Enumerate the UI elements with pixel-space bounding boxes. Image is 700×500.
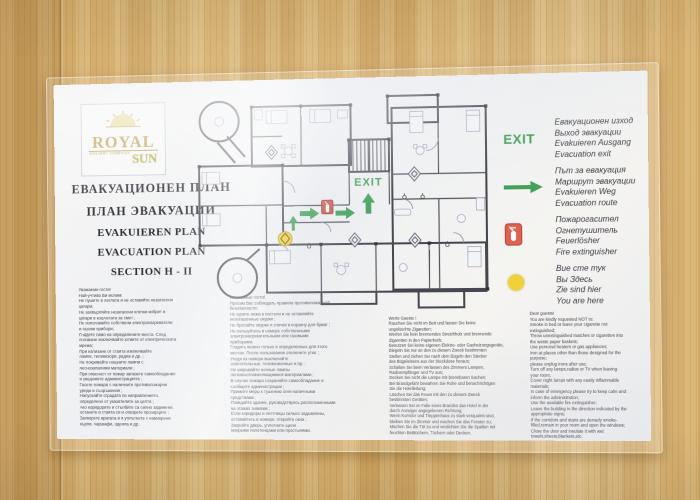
note-line: towels,sheets,blankets,etc. [531, 434, 651, 440]
note-line: кърпи, чаршафи, одеяла и др. [80, 421, 227, 427]
royal-sun-logo: ROYAL HOLIDAY COMPLEX SUN [81, 102, 167, 176]
plan-furniture [201, 105, 485, 283]
legend-line: Пожарогасител [555, 214, 618, 226]
exit-symbol-text: EXIT [503, 131, 554, 147]
you-are-here-dot-icon [508, 274, 525, 290]
plan-wall-ticks [197, 92, 489, 293]
sun-icon [94, 108, 152, 129]
legend-line: Evakuieren Ausgang [555, 137, 634, 149]
legend-line: Evacuation route [555, 197, 635, 209]
legend-line: Маршрут эвакуации [555, 176, 635, 188]
legend: EXIT Евакуационен изходВыход эвакуацииEv… [503, 116, 650, 313]
evacuation-plan-poster: ROYAL HOLIDAY COMPLEX SUN ЕВАКУАЦИОНЕН П… [54, 71, 652, 442]
legend-line: Огнетушитель [556, 225, 619, 236]
legend-line: Evacuation exit [555, 148, 634, 160]
notes-german: Werte Gaeste !Rauchen Sie nicht im Bett … [389, 315, 534, 436]
note-line: feuchten Betttüchern, Tüchern oder Decke… [390, 430, 534, 436]
logo-royal-text: ROYAL [82, 134, 165, 150]
fire-extinguisher-icon [504, 223, 523, 247]
legend-route-lines: Път за евакуацияМаршрут эвакуацииEvakuie… [555, 165, 636, 209]
legend-line: Feuerlösher [556, 236, 619, 247]
fire-extinguisher-marker [321, 200, 333, 214]
legend-row-location: Вие сте тукВы ЗдесьZie sind hierYou are … [505, 263, 650, 307]
notes-english: Dear guests!You are kindly requested NOT… [530, 310, 652, 440]
notes-russian: Уважаемые гости!Просим Вас соблюдать пра… [230, 294, 386, 434]
plan-exit-label: EXIT [354, 176, 383, 189]
legend-line: You are here [556, 296, 606, 307]
legend-line: Вы Здесь [556, 274, 606, 285]
legend-row-route: Път за евакуацияМаршрут эвакуацииEvakuie… [504, 165, 649, 210]
legend-line: Вие сте тук [556, 263, 606, 274]
notes-bulgarian: Уважаеми гости!Най-учтиво Ви молим:Не пу… [79, 286, 228, 427]
note-line: мокрыми полотенцами или простынями. [231, 428, 386, 434]
legend-line: Път за евакуация [555, 165, 635, 177]
legend-line: Евакуационен изход [554, 116, 633, 128]
legend-extinguisher-lines: ПожарогасителОгнетушительFeuerlösherFire… [555, 214, 619, 258]
route-arrow-icon [504, 180, 545, 195]
plan-inner-walls [198, 102, 487, 293]
legend-line: Fire extinguisher [556, 246, 619, 257]
legend-row-exit: EXIT Евакуационен изходВыход эвакуацииEv… [503, 116, 648, 162]
legend-line: Zie sind hier [556, 285, 606, 296]
you-are-here-marker [278, 232, 292, 246]
legend-exit-lines: Евакуационен изходВыход эвакуацииEvakuie… [554, 116, 633, 160]
legend-location-lines: Вие сте тукВы ЗдесьZie sind hierYou are … [556, 263, 606, 306]
plan-stairs [353, 139, 385, 172]
legend-row-extinguisher: ПожарогасителОгнетушительFeuerlösherFire… [504, 214, 649, 258]
